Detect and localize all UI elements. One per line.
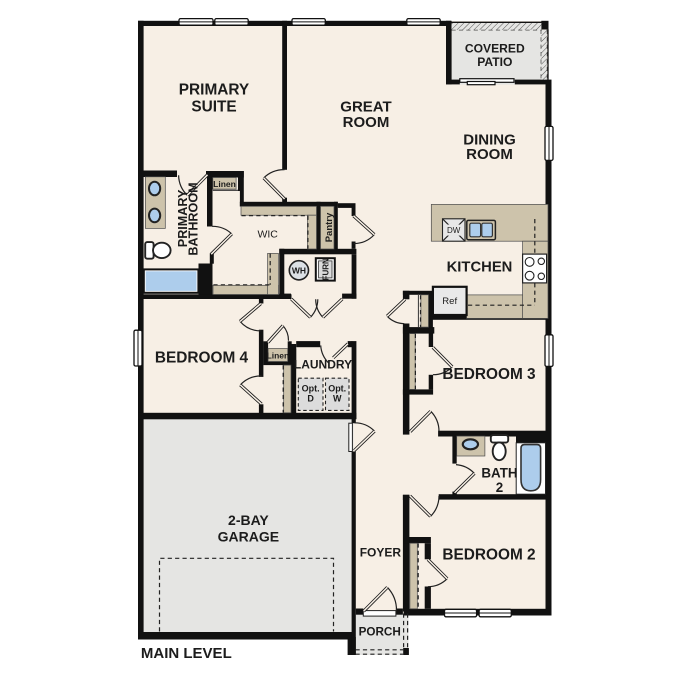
svg-text:GARAGE: GARAGE <box>218 529 279 545</box>
svg-text:KITCHEN: KITCHEN <box>447 260 513 276</box>
svg-text:D: D <box>307 394 314 404</box>
svg-text:BEDROOM 3: BEDROOM 3 <box>442 366 535 383</box>
svg-text:PORCH: PORCH <box>359 625 401 638</box>
svg-text:PATIO: PATIO <box>477 55 512 69</box>
svg-text:Pantry: Pantry <box>324 212 335 242</box>
svg-text:GREAT: GREAT <box>340 98 391 115</box>
svg-text:2: 2 <box>496 480 503 495</box>
svg-text:Opt.: Opt. <box>302 384 320 394</box>
svg-text:BEDROOM 2: BEDROOM 2 <box>442 546 535 563</box>
svg-text:FURN: FURN <box>321 258 330 280</box>
svg-text:COVERED: COVERED <box>465 42 525 56</box>
svg-text:FOYER: FOYER <box>360 545 402 559</box>
svg-text:MAIN LEVEL: MAIN LEVEL <box>141 645 232 662</box>
svg-text:BATH: BATH <box>481 466 517 481</box>
svg-text:W: W <box>333 394 342 404</box>
svg-text:Opt.: Opt. <box>328 384 346 394</box>
svg-text:2-BAY: 2-BAY <box>228 512 269 528</box>
svg-text:Ref: Ref <box>442 296 457 307</box>
svg-text:ROOM: ROOM <box>343 114 390 131</box>
svg-text:BEDROOM 4: BEDROOM 4 <box>155 350 249 367</box>
svg-text:PRIMARY: PRIMARY <box>179 82 250 99</box>
svg-text:SUITE: SUITE <box>191 99 236 116</box>
svg-text:DW: DW <box>447 226 461 235</box>
svg-text:BATHROOM: BATHROOM <box>186 182 200 255</box>
svg-text:Linen: Linen <box>267 351 290 361</box>
svg-text:WIC: WIC <box>257 228 278 240</box>
svg-text:WH: WH <box>292 265 306 275</box>
svg-text:LAUNDRY: LAUNDRY <box>294 357 352 371</box>
svg-text:ROOM: ROOM <box>466 146 513 163</box>
svg-text:Linen: Linen <box>213 179 236 189</box>
